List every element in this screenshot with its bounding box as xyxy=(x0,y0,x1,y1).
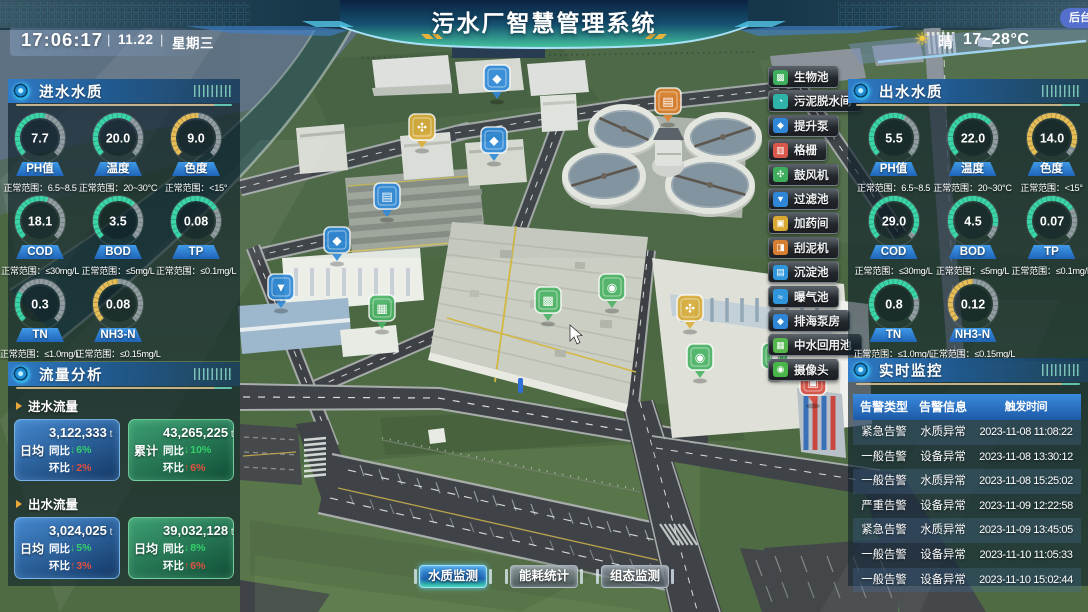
svg-text:7.7: 7.7 xyxy=(31,132,48,146)
svg-text:0.08: 0.08 xyxy=(184,215,208,229)
svg-text:5.5: 5.5 xyxy=(885,132,902,146)
svg-text:18.1: 18.1 xyxy=(28,215,52,229)
svg-text:3.5: 3.5 xyxy=(109,215,126,229)
svg-text:▼: ▼ xyxy=(275,281,287,295)
svg-text:▤: ▤ xyxy=(381,190,392,204)
svg-text:0.08: 0.08 xyxy=(106,298,130,312)
svg-text:0.8: 0.8 xyxy=(885,298,902,312)
svg-text:14.0: 14.0 xyxy=(1039,132,1063,146)
svg-text:4.5: 4.5 xyxy=(964,215,981,229)
svg-text:◆: ◆ xyxy=(332,234,342,248)
svg-text:▤: ▤ xyxy=(662,95,673,109)
svg-text:20.0: 20.0 xyxy=(106,132,130,146)
svg-text:▦: ▦ xyxy=(376,302,387,316)
svg-text:22.0: 22.0 xyxy=(960,132,984,146)
svg-text:9.0: 9.0 xyxy=(187,132,204,146)
svg-text:▩: ▩ xyxy=(542,294,553,308)
svg-text:◆: ◆ xyxy=(492,72,502,86)
svg-text:✣: ✣ xyxy=(685,302,695,316)
svg-text:◉: ◉ xyxy=(695,351,705,365)
svg-text:0.07: 0.07 xyxy=(1039,215,1063,229)
svg-text:◆: ◆ xyxy=(489,134,499,148)
svg-text:0.12: 0.12 xyxy=(960,298,984,312)
svg-text:◉: ◉ xyxy=(607,281,617,295)
svg-text:29.0: 29.0 xyxy=(881,215,905,229)
svg-text:✣: ✣ xyxy=(417,121,427,135)
svg-text:0.3: 0.3 xyxy=(31,298,48,312)
